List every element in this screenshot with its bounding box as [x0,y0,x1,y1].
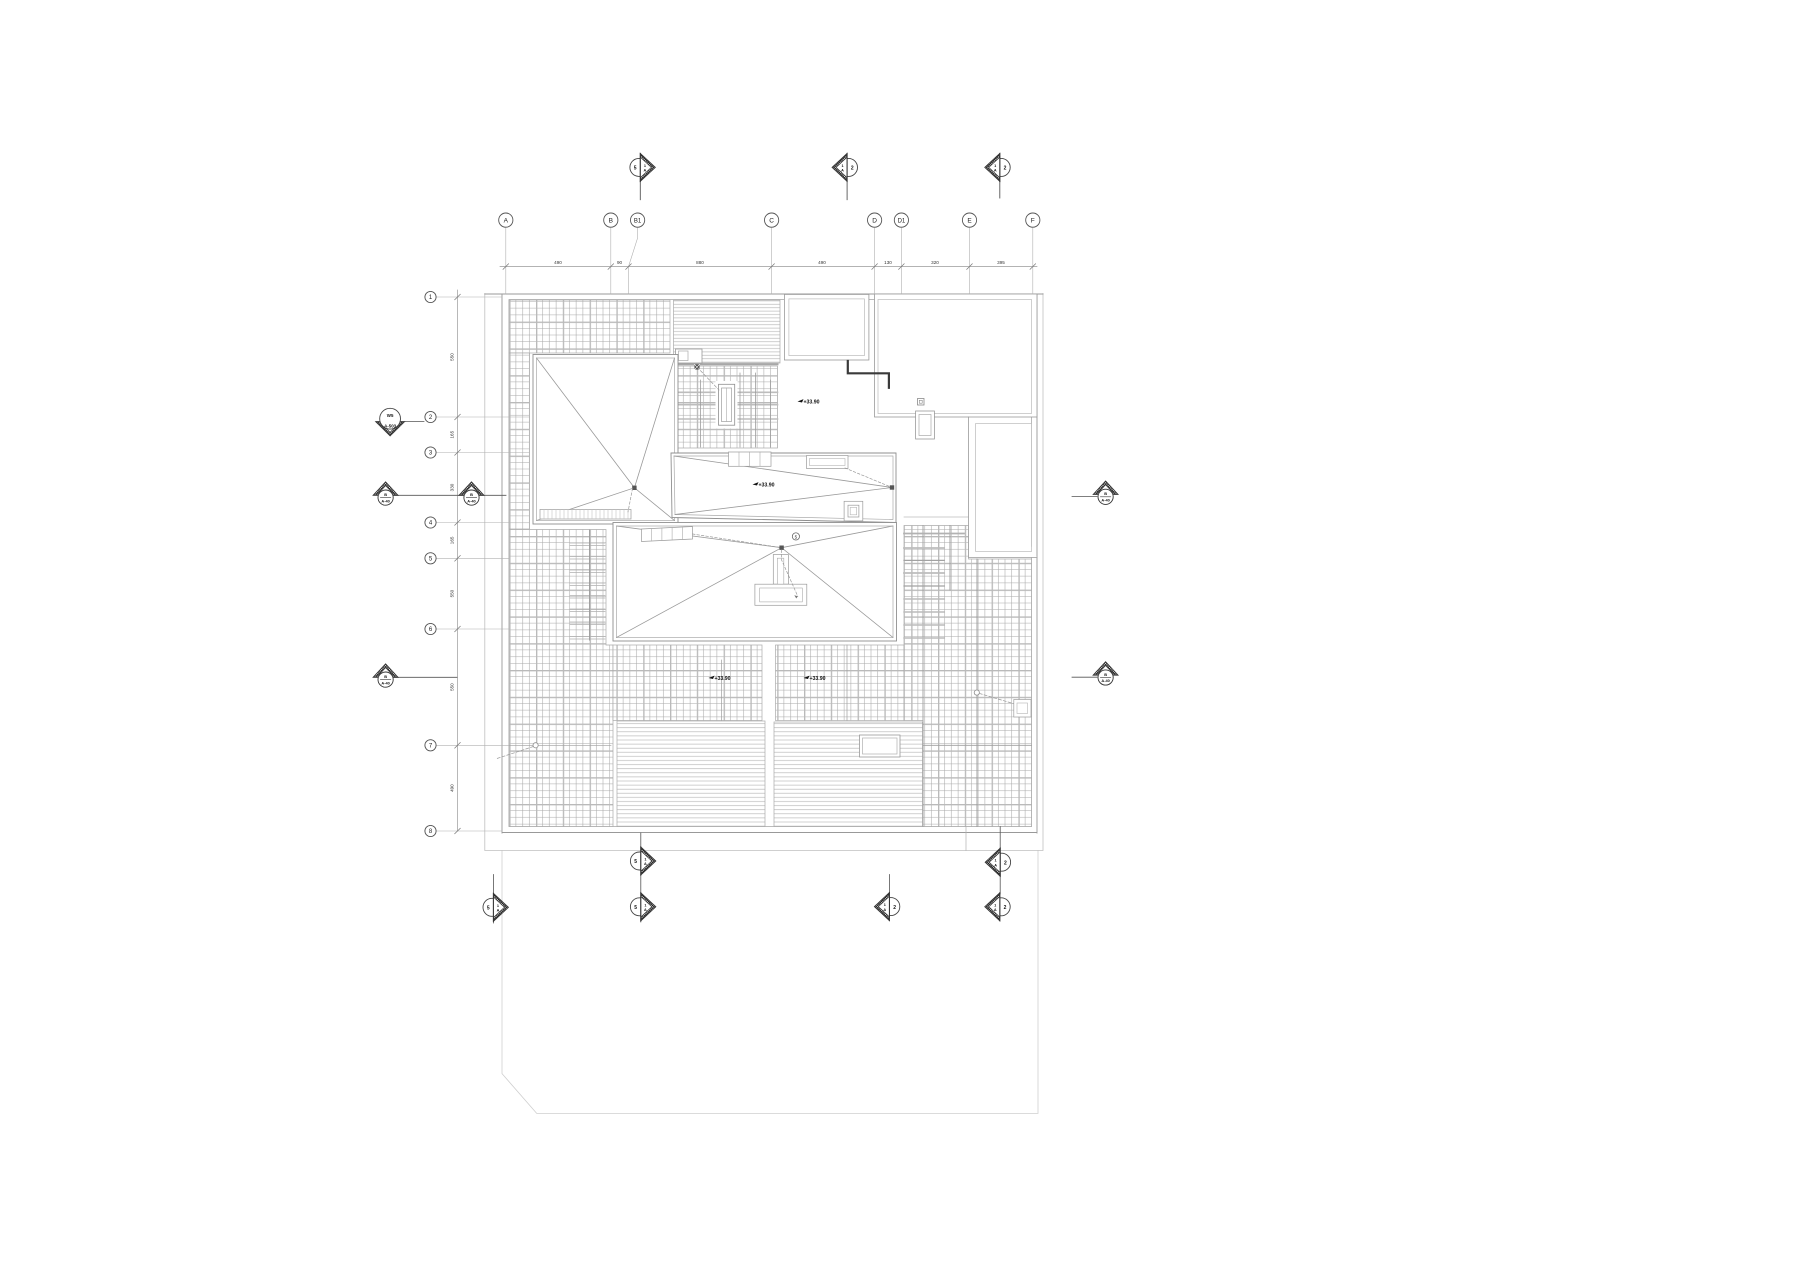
svg-text:490: 490 [818,260,826,265]
svg-text:E: E [967,218,972,225]
svg-text:395: 395 [997,260,1005,265]
svg-text:550: 550 [450,353,455,361]
svg-text:F: F [1031,218,1035,225]
svg-text:490: 490 [450,784,455,792]
svg-text:550: 550 [450,683,455,691]
svg-text:550: 550 [450,589,455,597]
svg-text:B: B [609,218,613,225]
svg-text:+33.90: +33.90 [759,482,775,488]
svg-text:+33.90: +33.90 [715,676,731,682]
svg-text:+33.90: +33.90 [804,399,820,405]
svg-text:90: 90 [617,260,623,265]
svg-text:880: 880 [696,260,704,265]
svg-text:B1: B1 [634,219,642,225]
svg-text:490: 490 [554,260,562,265]
svg-text:165: 165 [450,536,455,544]
svg-text:+33.90: +33.90 [810,676,826,682]
svg-text:330: 330 [450,483,455,491]
svg-text:D: D [872,218,877,225]
svg-text:165: 165 [450,430,455,438]
svg-text:C: C [769,218,774,225]
svg-text:320: 320 [931,260,939,265]
svg-text:A: A [504,218,509,225]
svg-text:130: 130 [884,260,892,265]
svg-text:D1: D1 [898,219,906,225]
